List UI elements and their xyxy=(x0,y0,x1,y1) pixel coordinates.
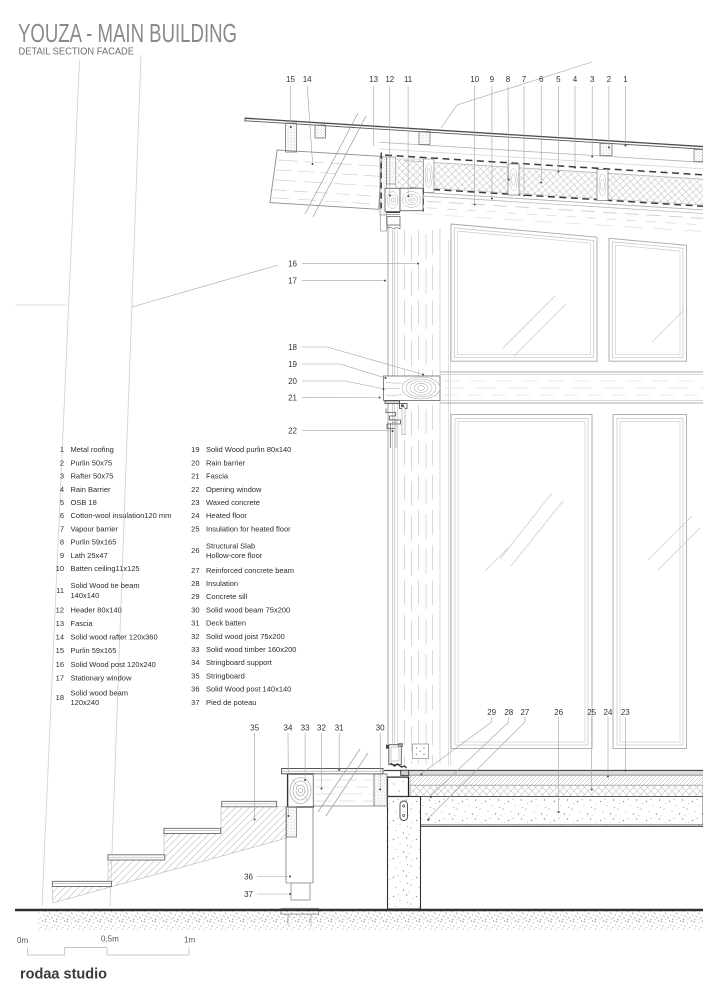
svg-text:Header 80x140: Header 80x140 xyxy=(71,605,122,614)
svg-text:37: 37 xyxy=(244,890,253,899)
svg-text:17: 17 xyxy=(56,673,64,682)
svg-text:10: 10 xyxy=(56,564,64,573)
svg-text:31: 31 xyxy=(335,724,344,733)
svg-text:34: 34 xyxy=(284,724,293,733)
svg-text:Opening window: Opening window xyxy=(206,485,262,494)
svg-text:22: 22 xyxy=(288,427,297,436)
svg-text:Concrete sill: Concrete sill xyxy=(206,592,248,601)
svg-text:20: 20 xyxy=(191,458,199,467)
svg-text:Solid Wood post 120x240: Solid Wood post 120x240 xyxy=(71,660,156,669)
svg-text:Purlin 59x165: Purlin 59x165 xyxy=(71,538,117,547)
svg-text:26: 26 xyxy=(554,708,563,717)
svg-text:37: 37 xyxy=(191,698,199,707)
svg-text:Heated floor: Heated floor xyxy=(206,511,247,520)
svg-text:17: 17 xyxy=(288,277,297,286)
svg-text:16: 16 xyxy=(56,660,64,669)
svg-text:10: 10 xyxy=(470,75,479,84)
svg-text:1: 1 xyxy=(623,75,628,84)
svg-text:29: 29 xyxy=(191,592,199,601)
svg-text:8: 8 xyxy=(506,75,511,84)
svg-text:12: 12 xyxy=(385,75,394,84)
svg-text:11: 11 xyxy=(56,586,64,595)
svg-text:1: 1 xyxy=(60,445,64,454)
svg-text:rodaa studio: rodaa studio xyxy=(20,967,107,983)
svg-text:36: 36 xyxy=(244,873,253,882)
svg-text:Hollow-core floor: Hollow-core floor xyxy=(206,551,263,560)
svg-text:35: 35 xyxy=(250,724,259,733)
svg-text:13: 13 xyxy=(369,75,378,84)
svg-text:16: 16 xyxy=(288,260,297,269)
svg-text:Solid wood beam 75x200: Solid wood beam 75x200 xyxy=(206,605,290,614)
svg-text:12: 12 xyxy=(56,605,64,614)
svg-text:27: 27 xyxy=(191,566,199,575)
svg-text:Purlin 59x165: Purlin 59x165 xyxy=(71,646,117,655)
svg-text:21: 21 xyxy=(288,394,297,403)
svg-text:Vapour barrier: Vapour barrier xyxy=(71,524,119,533)
svg-text:32: 32 xyxy=(317,724,326,733)
svg-text:3: 3 xyxy=(60,472,64,481)
svg-text:5: 5 xyxy=(60,498,64,507)
svg-text:Solid Wood purlin 80x140: Solid Wood purlin 80x140 xyxy=(206,445,291,454)
svg-text:28: 28 xyxy=(504,708,513,717)
svg-text:Structural Slab: Structural Slab xyxy=(206,542,255,551)
svg-text:6: 6 xyxy=(60,511,64,520)
svg-text:Stringboard: Stringboard xyxy=(206,671,245,680)
svg-text:5: 5 xyxy=(556,75,561,84)
svg-text:30: 30 xyxy=(376,724,385,733)
svg-text:Rafter 50x75: Rafter 50x75 xyxy=(71,472,114,481)
svg-text:6: 6 xyxy=(539,75,544,84)
svg-text:Solid Wood tie beam: Solid Wood tie beam xyxy=(71,581,140,590)
svg-text:30: 30 xyxy=(191,605,199,614)
svg-text:18: 18 xyxy=(56,693,64,702)
svg-text:20: 20 xyxy=(288,377,297,386)
svg-text:34: 34 xyxy=(191,658,199,667)
svg-text:Stringboard support: Stringboard support xyxy=(206,658,273,667)
svg-text:2: 2 xyxy=(60,458,64,467)
svg-text:19: 19 xyxy=(288,360,297,369)
svg-text:23: 23 xyxy=(191,498,199,507)
svg-text:2: 2 xyxy=(607,75,612,84)
svg-text:13: 13 xyxy=(56,619,64,628)
svg-text:35: 35 xyxy=(191,671,199,680)
svg-text:7: 7 xyxy=(60,524,64,533)
svg-text:Purlin 50x75: Purlin 50x75 xyxy=(71,458,113,467)
svg-text:23: 23 xyxy=(621,708,630,717)
svg-text:27: 27 xyxy=(520,708,529,717)
svg-text:15: 15 xyxy=(286,75,295,84)
svg-text:0,5m: 0,5m xyxy=(101,935,119,944)
svg-text:19: 19 xyxy=(191,445,199,454)
svg-text:Insulation for heated floor: Insulation for heated floor xyxy=(206,524,291,533)
svg-text:3: 3 xyxy=(590,75,595,84)
svg-text:18: 18 xyxy=(288,343,297,352)
svg-text:Cotton-wool insulation120 mm: Cotton-wool insulation120 mm xyxy=(71,511,172,520)
svg-text:9: 9 xyxy=(490,75,495,84)
svg-text:Fascia: Fascia xyxy=(206,472,229,481)
svg-text:24: 24 xyxy=(191,511,199,520)
svg-text:26: 26 xyxy=(191,546,199,555)
svg-text:1m: 1m xyxy=(184,936,195,945)
svg-text:14: 14 xyxy=(56,633,64,642)
svg-text:4: 4 xyxy=(573,75,578,84)
svg-text:0m: 0m xyxy=(17,936,28,945)
svg-text:YOUZA - MAIN BUILDING: YOUZA - MAIN BUILDING xyxy=(18,20,237,48)
svg-text:Solid wood joist 75x200: Solid wood joist 75x200 xyxy=(206,632,285,641)
svg-text:29: 29 xyxy=(487,708,496,717)
svg-text:Solid Wood post 140x140: Solid Wood post 140x140 xyxy=(206,685,291,694)
svg-text:Lath 25x47: Lath 25x47 xyxy=(71,551,108,560)
svg-text:32: 32 xyxy=(191,632,199,641)
svg-text:36: 36 xyxy=(191,685,199,694)
svg-text:9: 9 xyxy=(60,551,64,560)
svg-text:7: 7 xyxy=(522,75,527,84)
svg-text:DETAIL SECTION FACADE: DETAIL SECTION FACADE xyxy=(19,46,135,58)
svg-text:8: 8 xyxy=(60,538,64,547)
svg-text:14: 14 xyxy=(303,75,312,84)
svg-text:Waxed concrete: Waxed concrete xyxy=(206,498,260,507)
svg-text:25: 25 xyxy=(191,524,199,533)
svg-text:4: 4 xyxy=(60,485,64,494)
svg-text:Deck batten: Deck batten xyxy=(206,619,246,628)
svg-text:Batten ceiling11x125: Batten ceiling11x125 xyxy=(71,564,140,573)
svg-text:25: 25 xyxy=(587,708,596,717)
svg-text:OSB 18: OSB 18 xyxy=(71,498,97,507)
svg-text:120x240: 120x240 xyxy=(71,698,100,707)
svg-text:21: 21 xyxy=(191,472,199,481)
svg-text:Insulation: Insulation xyxy=(206,579,238,588)
svg-text:33: 33 xyxy=(301,724,310,733)
svg-text:33: 33 xyxy=(191,645,199,654)
svg-text:11: 11 xyxy=(404,75,413,84)
svg-text:22: 22 xyxy=(191,485,199,494)
svg-text:140x140: 140x140 xyxy=(71,591,100,600)
svg-text:Fascia: Fascia xyxy=(71,619,94,628)
svg-text:24: 24 xyxy=(604,708,613,717)
svg-text:Stationary window: Stationary window xyxy=(71,673,132,682)
svg-text:Solid wood beam: Solid wood beam xyxy=(71,689,129,698)
svg-text:Pied de poteau: Pied de poteau xyxy=(206,698,256,707)
svg-text:15: 15 xyxy=(56,646,64,655)
svg-text:Rain barrier: Rain barrier xyxy=(206,458,246,467)
svg-text:28: 28 xyxy=(191,579,199,588)
svg-text:Solid wood rafter 120x360: Solid wood rafter 120x360 xyxy=(71,633,158,642)
svg-text:Rain Barrier: Rain Barrier xyxy=(71,485,112,494)
svg-text:Metal roofing: Metal roofing xyxy=(71,445,114,454)
svg-text:31: 31 xyxy=(191,619,199,628)
svg-text:Reinforced concrete beam: Reinforced concrete beam xyxy=(206,566,294,575)
svg-text:Solid wood timber 160x200: Solid wood timber 160x200 xyxy=(206,645,296,654)
